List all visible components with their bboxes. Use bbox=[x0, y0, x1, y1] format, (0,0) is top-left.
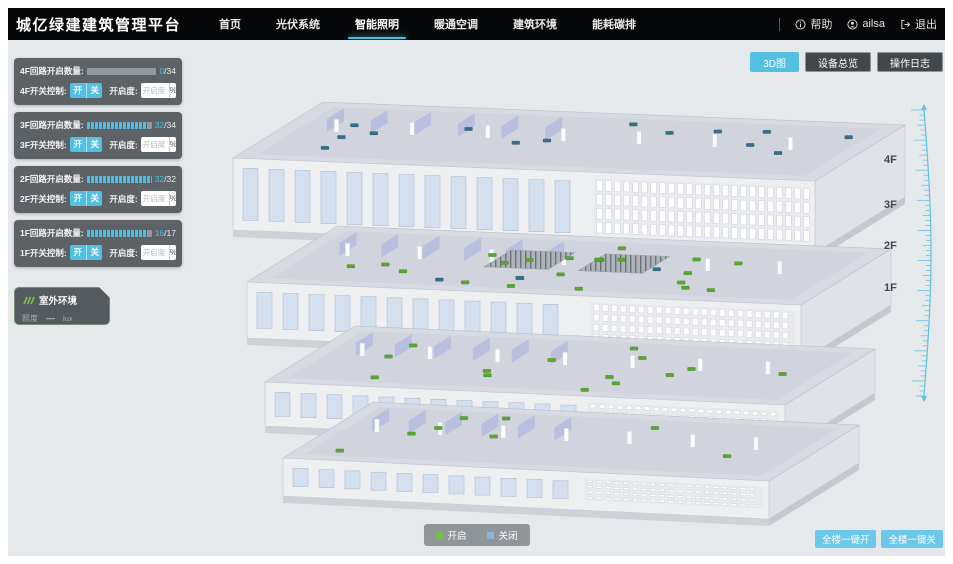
switch-off-button[interactable]: 关 bbox=[86, 137, 102, 152]
toolbar-button-操作日志[interactable]: 操作日志 bbox=[877, 52, 943, 72]
floor-marker-3F[interactable]: 3F bbox=[884, 199, 897, 211]
app-title: 城亿绿建建筑管理平台 bbox=[16, 14, 181, 35]
openness-input[interactable] bbox=[141, 245, 169, 260]
floor-marker-2F[interactable]: 2F bbox=[884, 240, 897, 252]
outdoor-title: 室外环境 bbox=[39, 293, 77, 307]
main-stage: 3D图设备总览操作日志 4F回路开启数量: 0/34 4F开关控制: 开 关 开… bbox=[8, 40, 945, 556]
switch-control-label: 1F开关控制: bbox=[20, 247, 67, 259]
switch-off-button[interactable]: 关 bbox=[86, 191, 102, 206]
switch-button-group: 开 关 bbox=[70, 245, 103, 260]
footer-buttons: 全楼一键开 全楼一键关 bbox=[815, 530, 943, 548]
help-button[interactable]: 帮助 bbox=[795, 16, 832, 32]
logout-label: 退出 bbox=[915, 16, 937, 32]
legend-swatch bbox=[435, 532, 442, 539]
status-legend: 开启关闭 bbox=[423, 524, 529, 546]
nav-item-智能照明[interactable]: 智能照明 bbox=[353, 13, 401, 35]
floor-control-panel-3F: 3F回路开启数量: 32/34 3F开关控制: 开 关 开启度: % bbox=[14, 112, 182, 159]
outdoor-metric-unit: lux bbox=[63, 314, 73, 323]
switch-on-button[interactable]: 开 bbox=[70, 137, 86, 152]
nav-item-暖通空调[interactable]: 暖通空调 bbox=[432, 13, 480, 35]
info-icon bbox=[795, 19, 806, 30]
openness-input-group: % bbox=[141, 83, 176, 98]
all-floors-off-button[interactable]: 全楼一键关 bbox=[881, 530, 943, 548]
openness-input-group: % bbox=[141, 137, 176, 152]
openness-label: 开启度: bbox=[109, 85, 137, 97]
toolbar-button-设备总览[interactable]: 设备总览 bbox=[805, 52, 871, 72]
floor-marker-4F[interactable]: 4F bbox=[884, 154, 897, 166]
circuit-count-label: 4F回路开启数量: bbox=[20, 65, 84, 77]
nav-item-能耗碳排[interactable]: 能耗碳排 bbox=[590, 13, 638, 35]
circuit-count-value: 0/34 bbox=[159, 66, 176, 76]
legend-item-开启: 开启 bbox=[435, 528, 466, 542]
circuit-count-label: 3F回路开启数量: bbox=[20, 119, 84, 131]
percent-button[interactable]: % bbox=[169, 137, 176, 152]
percent-button[interactable]: % bbox=[169, 245, 176, 260]
switch-on-button[interactable]: 开 bbox=[70, 245, 86, 260]
nav-item-建筑环境[interactable]: 建筑环境 bbox=[511, 13, 559, 35]
header-divider bbox=[779, 18, 780, 31]
switch-control-label: 2F开关控制: bbox=[20, 193, 67, 205]
openness-input-group: % bbox=[141, 245, 176, 260]
switch-control-label: 3F开关控制: bbox=[20, 139, 67, 151]
view-toolbar: 3D图设备总览操作日志 bbox=[750, 52, 943, 72]
circuit-count-value: 16/17 bbox=[155, 228, 176, 238]
circuit-progress-bar bbox=[87, 68, 157, 75]
circuit-progress-bar bbox=[87, 176, 152, 183]
openness-label: 开启度: bbox=[109, 247, 137, 259]
toolbar-button-3D图[interactable]: 3D图 bbox=[750, 52, 799, 72]
switch-button-group: 开 关 bbox=[70, 191, 103, 206]
header-right: 帮助 ailsa 退出 bbox=[779, 16, 937, 32]
openness-input-group: % bbox=[141, 191, 176, 206]
outdoor-env-panel: 室外环境 照度 — lux bbox=[14, 287, 110, 325]
user-icon bbox=[847, 19, 858, 30]
percent-button[interactable]: % bbox=[169, 83, 176, 98]
switch-on-button[interactable]: 开 bbox=[70, 83, 86, 98]
user-menu[interactable]: ailsa bbox=[847, 18, 885, 30]
circuit-count-label: 1F回路开启数量: bbox=[20, 227, 84, 239]
help-label: 帮助 bbox=[810, 16, 832, 32]
openness-label: 开启度: bbox=[109, 193, 137, 205]
outdoor-slash-icon bbox=[22, 296, 35, 305]
app-header: 城亿绿建建筑管理平台 首页光伏系统智能照明暖通空调建筑环境能耗碳排 帮助 ail… bbox=[8, 8, 945, 40]
switch-button-group: 开 关 bbox=[70, 83, 103, 98]
legend-swatch bbox=[487, 532, 494, 539]
page: 城亿绿建建筑管理平台 首页光伏系统智能照明暖通空调建筑环境能耗碳排 帮助 ail… bbox=[8, 8, 945, 556]
main-nav: 首页光伏系统智能照明暖通空调建筑环境能耗碳排 bbox=[217, 13, 638, 35]
all-floors-on-button[interactable]: 全楼一键开 bbox=[815, 530, 877, 548]
circuit-count-value: 32/32 bbox=[155, 174, 176, 184]
openness-input[interactable] bbox=[141, 137, 169, 152]
switch-control-label: 4F开关控制: bbox=[20, 85, 67, 97]
user-name: ailsa bbox=[862, 18, 885, 30]
floor-control-panel-4F: 4F回路开启数量: 0/34 4F开关控制: 开 关 开启度: % bbox=[14, 58, 182, 105]
logout-icon bbox=[900, 19, 911, 30]
logout-button[interactable]: 退出 bbox=[900, 16, 937, 32]
openness-input[interactable] bbox=[141, 191, 169, 206]
openness-input[interactable] bbox=[141, 83, 169, 98]
floor-control-panel-2F: 2F回路开启数量: 32/32 2F开关控制: 开 关 开启度: % bbox=[14, 166, 182, 213]
nav-item-光伏系统[interactable]: 光伏系统 bbox=[274, 13, 322, 35]
building-3d-view[interactable] bbox=[203, 46, 915, 528]
circuit-count-label: 2F回路开启数量: bbox=[20, 173, 84, 185]
floor-panels: 4F回路开启数量: 0/34 4F开关控制: 开 关 开启度: % 3F回路开启… bbox=[14, 58, 182, 267]
circuit-progress-bar bbox=[87, 230, 152, 237]
nav-item-首页[interactable]: 首页 bbox=[217, 13, 243, 35]
legend-item-关闭: 关闭 bbox=[487, 528, 518, 542]
switch-off-button[interactable]: 关 bbox=[86, 83, 102, 98]
switch-on-button[interactable]: 开 bbox=[70, 191, 86, 206]
openness-label: 开启度: bbox=[109, 139, 137, 151]
switch-button-group: 开 关 bbox=[70, 137, 103, 152]
floor-control-panel-1F: 1F回路开启数量: 16/17 1F开关控制: 开 关 开启度: % bbox=[14, 220, 182, 267]
outdoor-metric-value: — bbox=[46, 313, 55, 323]
floor-marker-1F[interactable]: 1F bbox=[884, 282, 897, 294]
circuit-progress-bar bbox=[87, 122, 152, 129]
switch-off-button[interactable]: 关 bbox=[86, 245, 102, 260]
outdoor-metric-label: 照度 bbox=[22, 313, 38, 324]
circuit-count-value: 32/34 bbox=[155, 120, 176, 130]
percent-button[interactable]: % bbox=[169, 191, 176, 206]
elevation-ruler bbox=[903, 102, 937, 406]
